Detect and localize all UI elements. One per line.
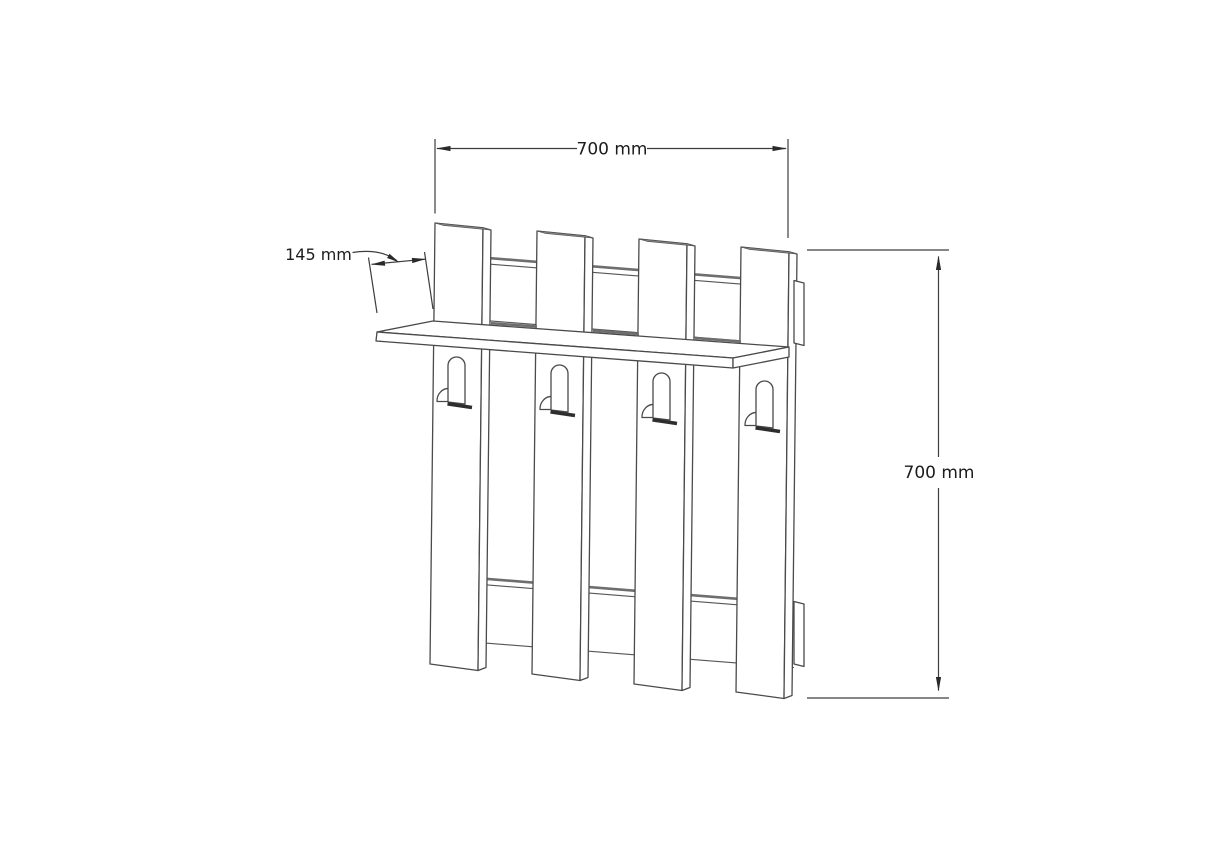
arrowhead-down <box>936 677 941 692</box>
depth-ext-left <box>369 258 378 314</box>
hook-1-plate <box>448 357 465 404</box>
slat-3 <box>634 239 695 691</box>
hook-3-plate <box>653 373 670 420</box>
hook-4-plate <box>756 381 773 428</box>
slat-1-front <box>430 223 483 671</box>
depth-label: 145 mm <box>285 245 352 264</box>
width-label: 700 mm <box>577 140 648 160</box>
height-label: 700 mm <box>904 463 975 483</box>
arrowhead-leader <box>387 254 399 263</box>
dimension-height: 700 mm <box>807 250 974 698</box>
slat-1 <box>430 223 491 671</box>
depth-ext-right <box>425 252 434 309</box>
slat-2 <box>532 231 593 681</box>
slat-4 <box>736 247 797 699</box>
drawing-canvas: 700 mm 145 mm 700 mm <box>0 0 1214 858</box>
slat-3-front <box>634 239 687 691</box>
hook-2-plate <box>551 365 568 412</box>
arrowhead-right <box>773 146 788 151</box>
arrowhead-left <box>371 261 385 266</box>
bottom-rail-end-cap <box>794 602 804 667</box>
arrowhead-left <box>436 146 451 151</box>
arrowhead-right <box>412 258 426 263</box>
dimension-width: 700 mm <box>435 139 788 238</box>
dimension-depth: 145 mm <box>285 245 433 313</box>
top-rail-end-cap <box>794 281 804 346</box>
slat-4-front <box>736 247 789 699</box>
coat-rack-technical-drawing: 700 mm 145 mm 700 mm <box>0 0 1214 858</box>
arrowhead-up <box>936 256 941 271</box>
slats <box>430 223 797 699</box>
slat-2-front <box>532 231 585 681</box>
rail-end-caps <box>794 281 804 667</box>
